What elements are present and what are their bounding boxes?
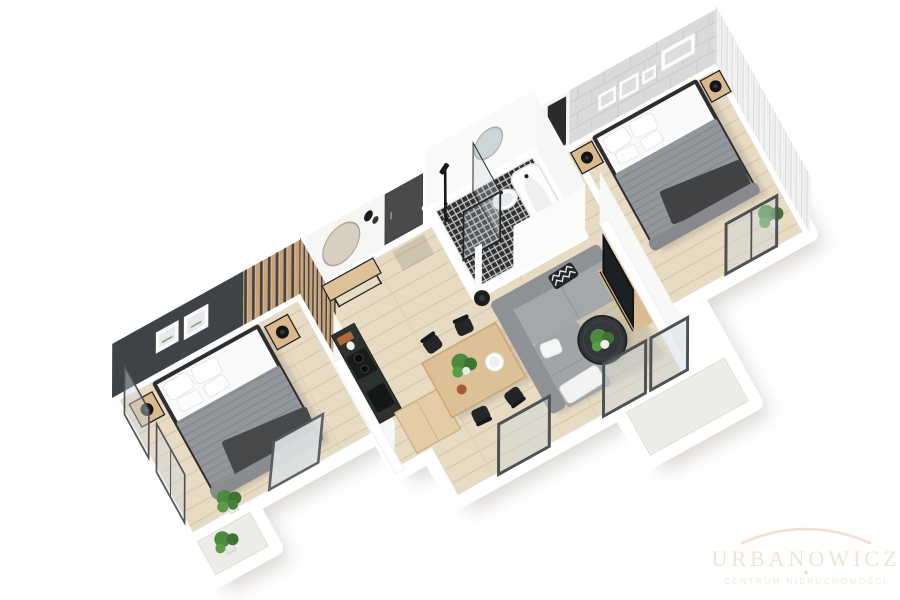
- watermark-subtitle: CENTRUM NIERUCHOMOŚCI: [724, 575, 888, 586]
- door-handle: [390, 212, 392, 220]
- floor-plan-render: URBANOWICZ CENTRUM NIERUCHOMOŚCI: [0, 0, 900, 600]
- watermark-dot: [804, 571, 807, 574]
- apartment: [81, 0, 900, 600]
- watermark-brand: URBANOWICZ: [711, 546, 900, 571]
- screenshot-canvas: URBANOWICZ CENTRUM NIERUCHOMOŚCI: [0, 0, 900, 600]
- watermark: URBANOWICZ CENTRUM NIERUCHOMOŚCI: [711, 529, 900, 586]
- watermark-arc: [742, 529, 870, 543]
